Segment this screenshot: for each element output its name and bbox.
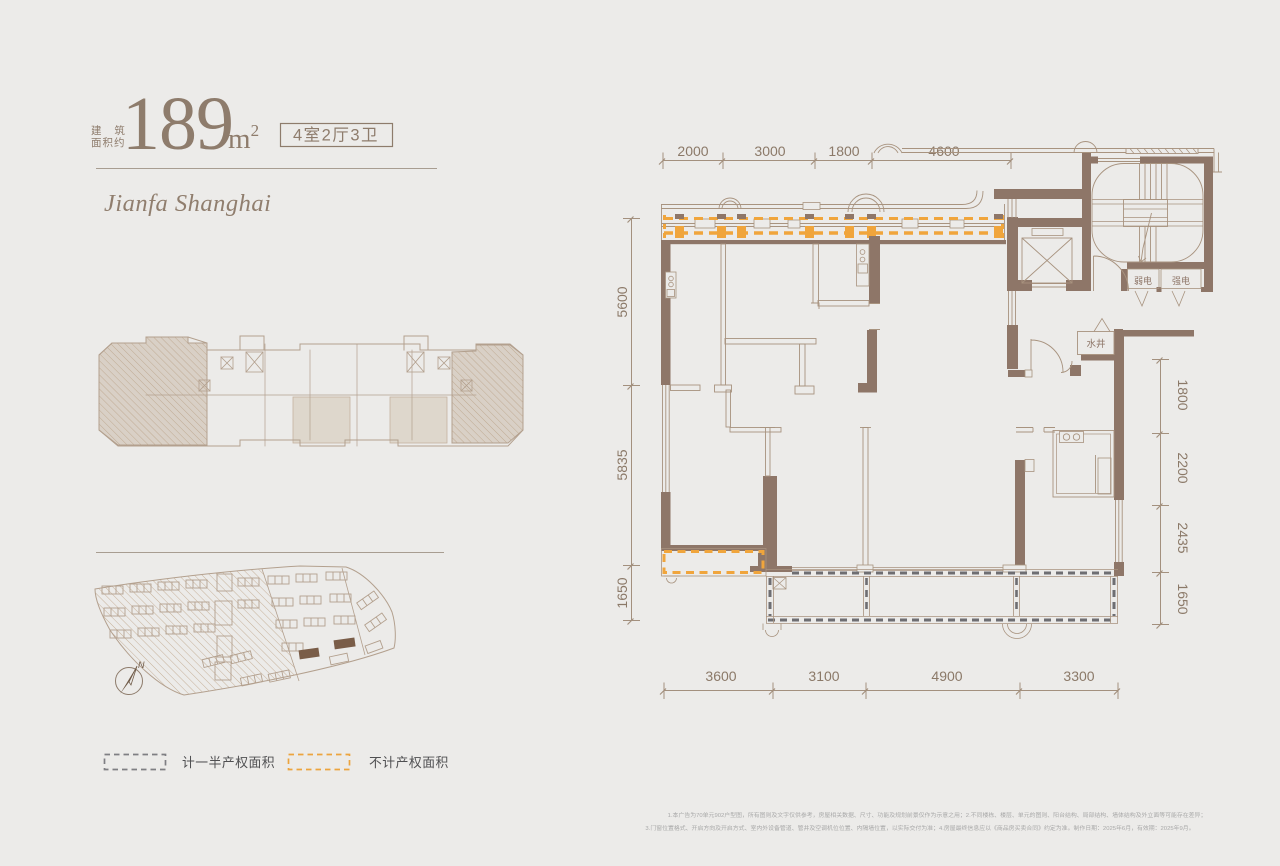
svg-text:2000: 2000 <box>677 143 708 159</box>
svg-text:5600: 5600 <box>614 286 630 317</box>
svg-text:面积约: 面积约 <box>91 136 126 149</box>
svg-text:1650: 1650 <box>614 577 630 608</box>
svg-text:计一半产权面积: 计一半产权面积 <box>182 755 275 770</box>
svg-text:1800: 1800 <box>828 143 859 159</box>
svg-text:3.门窗位置格式、开启方向及开启方式、室内外设备管道、管井及: 3.门窗位置格式、开启方向及开启方式、室内外设备管道、管井及空调机位位置、内隔墙… <box>645 824 1194 832</box>
svg-text:强电: 强电 <box>1172 275 1190 286</box>
svg-text:弱电: 弱电 <box>1134 275 1152 286</box>
svg-text:3600: 3600 <box>705 668 736 684</box>
svg-text:5835: 5835 <box>614 449 630 480</box>
svg-text:1650: 1650 <box>1175 583 1191 614</box>
svg-text:4900: 4900 <box>931 668 962 684</box>
svg-text:水井: 水井 <box>1086 338 1105 350</box>
svg-text:4室2厅3卫: 4室2厅3卫 <box>293 126 379 145</box>
svg-text:Jianfa Shanghai: Jianfa Shanghai <box>104 190 271 217</box>
svg-text:不计产权面积: 不计产权面积 <box>369 755 449 770</box>
svg-text:N: N <box>138 660 145 670</box>
svg-text:2435: 2435 <box>1175 522 1191 553</box>
svg-text:1.本广告为70单元902户型图，所有图则及文字仅供参考，房: 1.本广告为70单元902户型图，所有图则及文字仅供参考，房屋相关数据、尺寸、功… <box>668 811 1207 819</box>
svg-text:3100: 3100 <box>808 668 839 684</box>
svg-text:2200: 2200 <box>1175 452 1191 483</box>
svg-text:3300: 3300 <box>1063 668 1094 684</box>
svg-text:1800: 1800 <box>1175 379 1191 410</box>
svg-text:189: 189 <box>122 82 233 166</box>
svg-text:4600: 4600 <box>928 143 959 159</box>
svg-text:3000: 3000 <box>754 143 785 159</box>
